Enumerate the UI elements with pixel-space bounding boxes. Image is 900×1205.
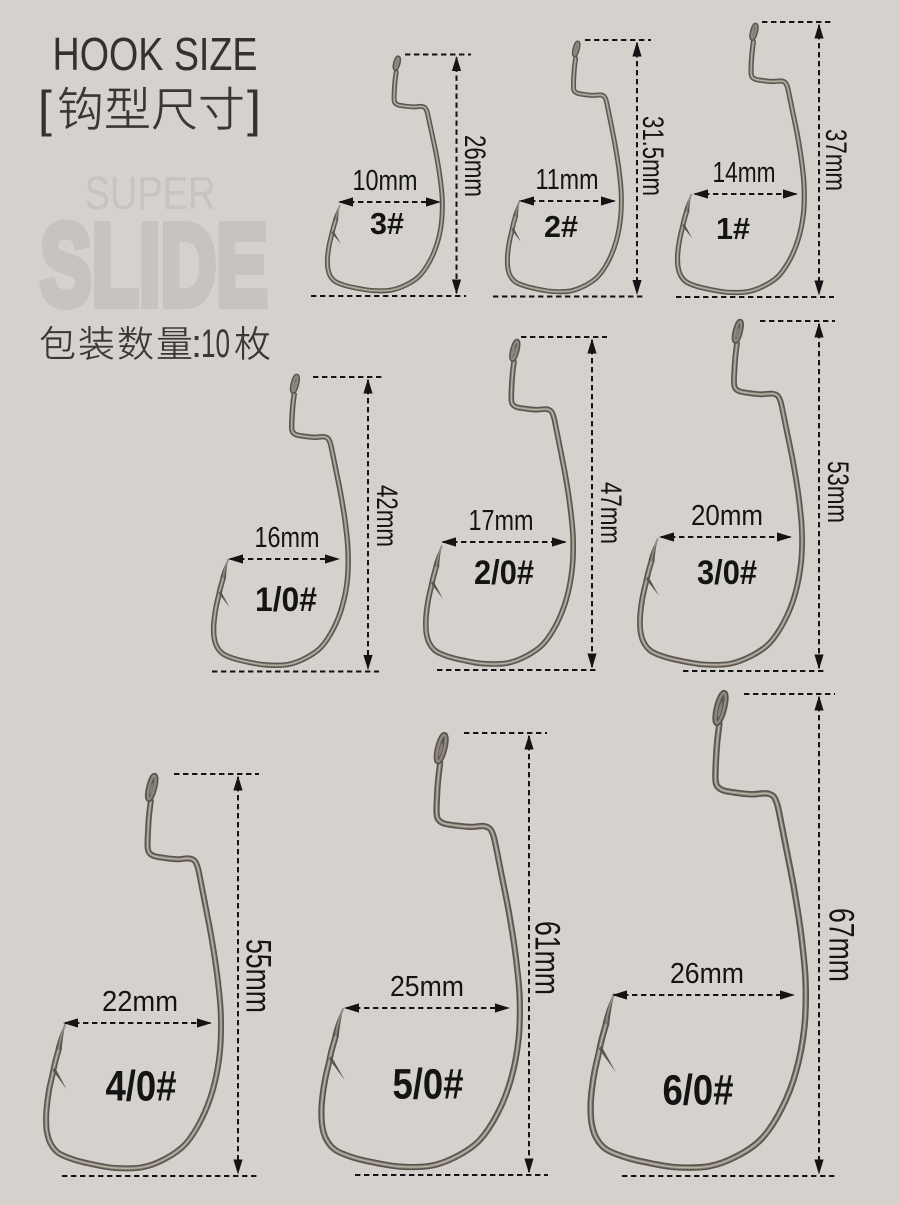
svg-text:10mm: 10mm <box>353 165 418 197</box>
svg-text:37mm: 37mm <box>819 129 852 191</box>
svg-text:31.5mm: 31.5mm <box>636 116 669 196</box>
svg-text:10: 10 <box>201 322 230 366</box>
svg-text:14mm: 14mm <box>713 157 776 189</box>
svg-text:17mm: 17mm <box>469 505 534 537</box>
svg-text:6/0#: 6/0# <box>663 1067 734 1115</box>
svg-text:47mm: 47mm <box>594 482 627 544</box>
svg-text:SLIDE: SLIDE <box>40 200 268 330</box>
svg-text:1#: 1# <box>716 211 750 246</box>
svg-text:HOOK SIZE: HOOK SIZE <box>53 28 258 80</box>
svg-text:2#: 2# <box>544 209 578 244</box>
svg-text:25mm: 25mm <box>390 971 464 1003</box>
svg-text:26mm: 26mm <box>670 958 744 990</box>
svg-text:[: [ <box>38 81 52 137</box>
svg-text:16mm: 16mm <box>255 522 320 554</box>
svg-text:5/0#: 5/0# <box>393 1061 464 1109</box>
svg-text:61mm: 61mm <box>527 921 566 995</box>
svg-text:22mm: 22mm <box>102 986 178 1018</box>
svg-text:26mm: 26mm <box>458 135 491 197</box>
svg-text:42mm: 42mm <box>370 485 403 547</box>
svg-text:1/0#: 1/0# <box>255 581 317 619</box>
svg-text:3/0#: 3/0# <box>697 554 757 592</box>
svg-text:3#: 3# <box>370 206 404 241</box>
svg-text:2/0#: 2/0# <box>474 554 534 592</box>
svg-text:11mm: 11mm <box>536 164 599 196</box>
svg-text:53mm: 53mm <box>821 461 854 523</box>
svg-text:]: ] <box>247 81 261 137</box>
svg-text:20mm: 20mm <box>691 500 763 532</box>
svg-text:4/0#: 4/0# <box>106 1063 177 1111</box>
svg-text:55mm: 55mm <box>238 939 277 1013</box>
svg-text:67mm: 67mm <box>821 908 860 982</box>
